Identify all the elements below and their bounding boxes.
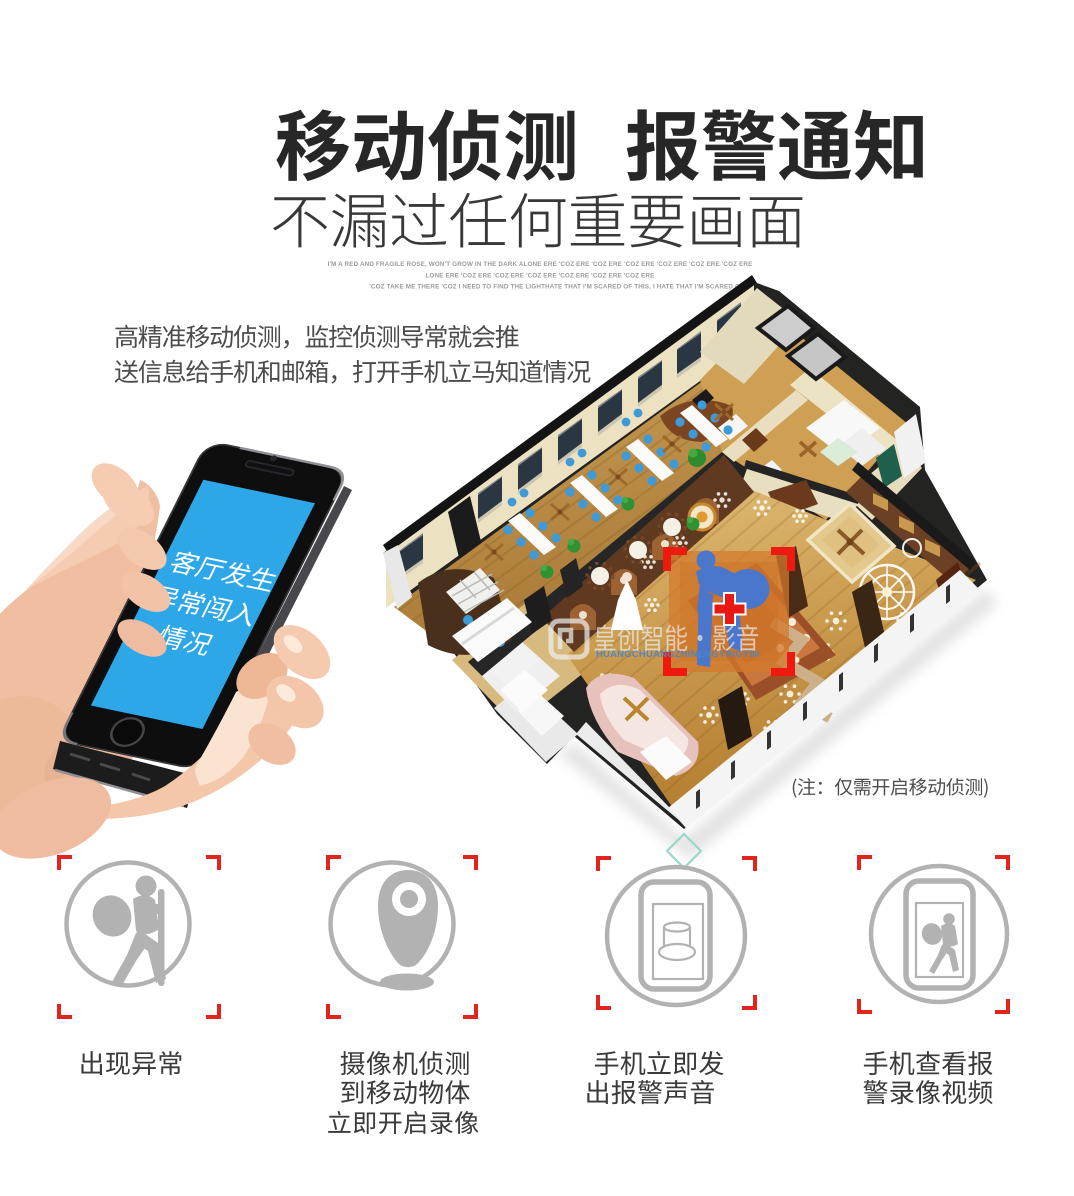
svg-text:HUANGCHUANGZHINENGYINGYIN: HUANGCHUANGZHINENGYINGYIN — [596, 649, 759, 660]
svg-text:LONE ERE 'COZ ERE 'COZ ERE 'CO: LONE ERE 'COZ ERE 'COZ ERE 'COZ ERE 'COZ… — [426, 273, 655, 280]
svg-text:I'M A RED AND FRAGILE ROSE, WO: I'M A RED AND FRAGILE ROSE, WON'T GROW I… — [328, 261, 753, 268]
svg-text:'COZ TAKE ME THERE 'COZ I NEED: 'COZ TAKE ME THERE 'COZ I NEED TO FIND T… — [369, 284, 763, 291]
